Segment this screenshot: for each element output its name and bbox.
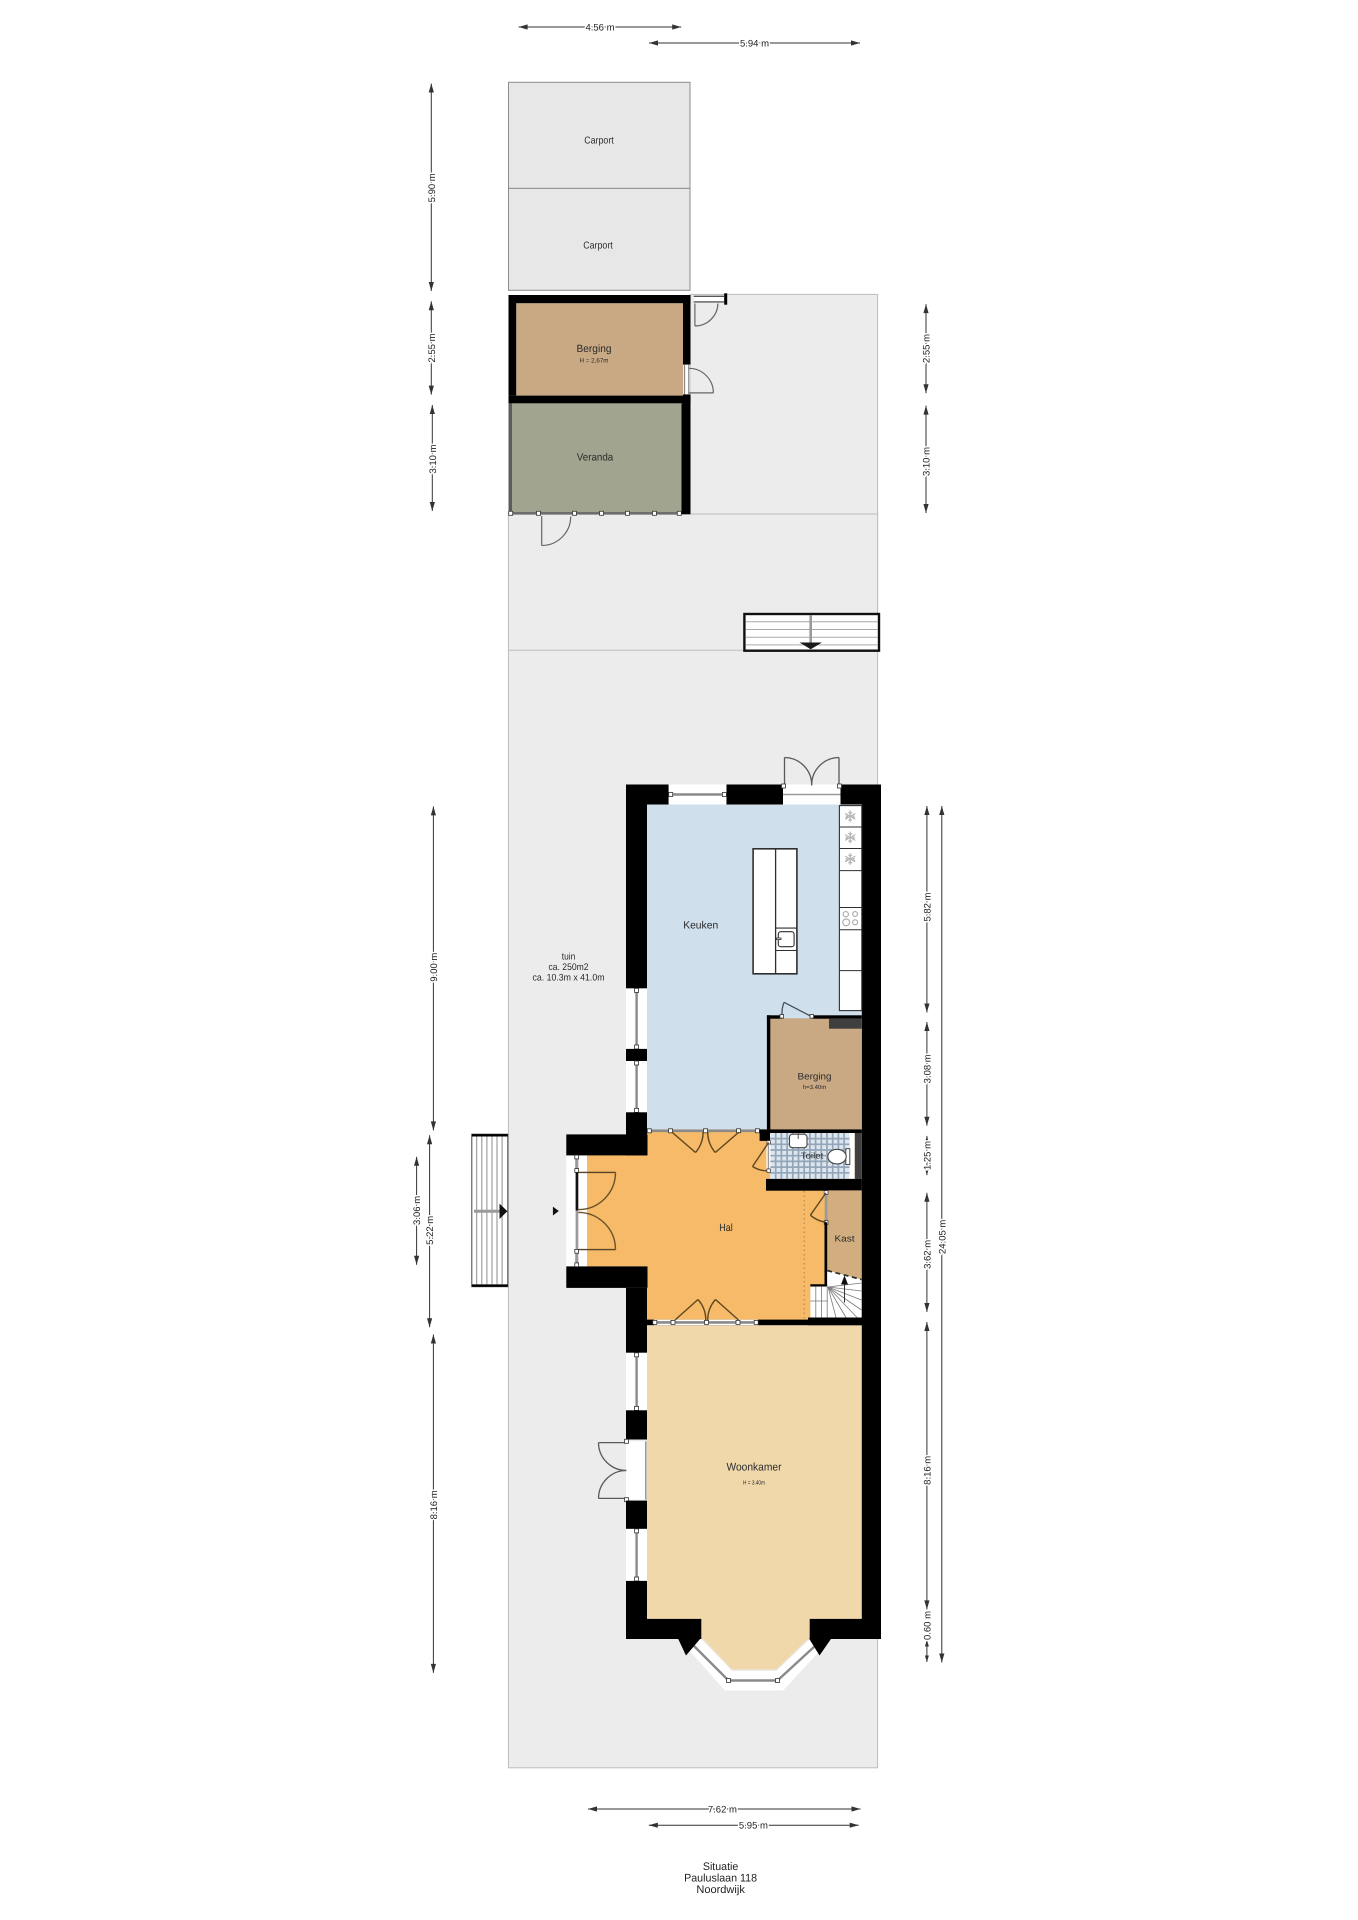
svg-text:Carport: Carport xyxy=(584,136,614,147)
svg-text:Noordwijk: Noordwijk xyxy=(696,1884,745,1896)
svg-text:8.16 m: 8.16 m xyxy=(429,1490,440,1519)
svg-text:9.00 m: 9.00 m xyxy=(429,953,440,982)
svg-text:3.08 m: 3.08 m xyxy=(922,1054,933,1083)
svg-text:H = 2,67m: H = 2,67m xyxy=(580,358,609,365)
svg-text:Situatie: Situatie xyxy=(703,1861,739,1873)
svg-text:2.55 m: 2.55 m xyxy=(427,333,438,362)
svg-text:h=3.40m: h=3.40m xyxy=(803,1084,827,1091)
svg-text:3.62 m: 3.62 m xyxy=(922,1240,933,1269)
svg-text:7.62 m: 7.62 m xyxy=(708,1805,737,1816)
svg-text:Veranda: Veranda xyxy=(577,452,614,464)
svg-text:Carport: Carport xyxy=(583,241,613,252)
svg-text:H = 3.40m: H = 3.40m xyxy=(743,1480,765,1487)
svg-text:8.16 m: 8.16 m xyxy=(922,1456,933,1485)
svg-text:4.56 m: 4.56 m xyxy=(585,23,614,34)
svg-text:3.10 m: 3.10 m xyxy=(428,444,439,473)
svg-text:5.22 m: 5.22 m xyxy=(425,1216,436,1245)
svg-text:Woonkamer: Woonkamer xyxy=(727,1462,782,1474)
svg-text:24.05 m: 24.05 m xyxy=(937,1220,948,1254)
svg-text:1.25 m: 1.25 m xyxy=(922,1141,933,1170)
svg-text:3.10 m: 3.10 m xyxy=(922,447,933,476)
svg-text:0.60 m: 0.60 m xyxy=(922,1611,933,1640)
svg-text:ca. 250m2: ca. 250m2 xyxy=(549,962,589,973)
svg-text:5.82 m: 5.82 m xyxy=(922,892,933,921)
svg-text:Pauluslaan 118: Pauluslaan 118 xyxy=(684,1873,757,1885)
svg-text:tuin: tuin xyxy=(562,952,576,963)
svg-text:Kast: Kast xyxy=(835,1234,856,1244)
svg-text:Toilet: Toilet xyxy=(801,1151,824,1161)
svg-text:Berging: Berging xyxy=(577,343,612,355)
svg-text:ca. 10.3m x 41.0m: ca. 10.3m x 41.0m xyxy=(533,973,605,984)
svg-text:Keuken: Keuken xyxy=(683,920,718,932)
svg-text:5.94 m: 5.94 m xyxy=(740,39,769,50)
svg-text:5.90 m: 5.90 m xyxy=(427,173,438,202)
svg-text:3.06 m: 3.06 m xyxy=(412,1196,423,1225)
svg-text:Berging: Berging xyxy=(798,1072,832,1083)
svg-text:5.95 m: 5.95 m xyxy=(739,1821,768,1832)
svg-text:2.55 m: 2.55 m xyxy=(922,334,933,363)
svg-text:Hal: Hal xyxy=(719,1222,733,1234)
